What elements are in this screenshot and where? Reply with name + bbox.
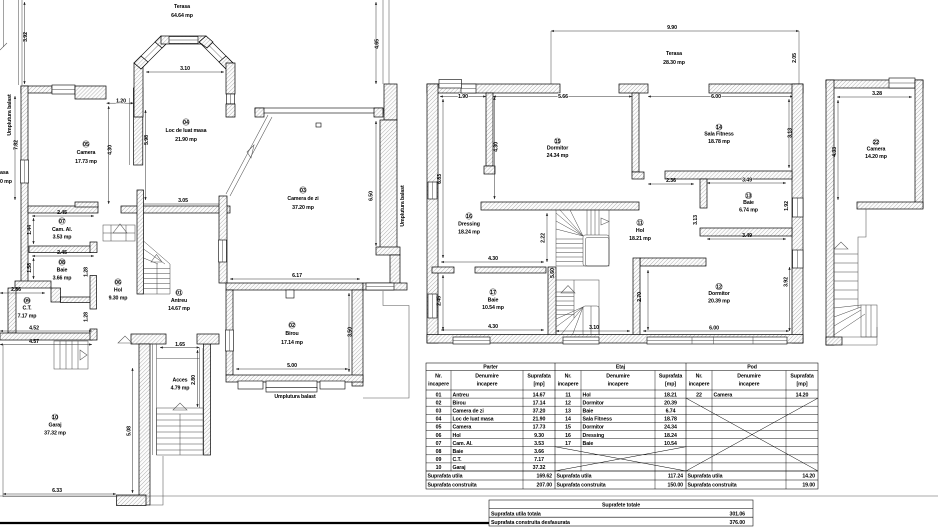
svg-text:37.20 mp: 37.20 mp [292, 205, 314, 211]
svg-text:21.90 mp: 21.90 mp [175, 137, 197, 143]
svg-text:3.50: 3.50 [348, 327, 354, 337]
svg-text:5.08: 5.08 [127, 426, 133, 436]
svg-text:Dressing: Dressing [458, 222, 480, 228]
svg-text:14.20: 14.20 [802, 474, 815, 480]
svg-text:13: 13 [746, 194, 752, 200]
svg-text:7.17 mp: 7.17 mp [18, 314, 37, 320]
svg-text:6.74 mp: 6.74 mp [739, 208, 758, 214]
svg-text:1.44: 1.44 [27, 225, 33, 235]
svg-text:Birou: Birou [285, 331, 298, 337]
svg-text:37.32 mp: 37.32 mp [44, 431, 66, 437]
svg-text:150.00: 150.00 [668, 483, 684, 489]
svg-text:24.34: 24.34 [664, 425, 677, 431]
svg-text:07: 07 [436, 441, 442, 447]
svg-text:Camera: Camera [77, 150, 96, 156]
svg-text:10: 10 [436, 465, 442, 471]
svg-text:19.00: 19.00 [802, 483, 815, 489]
svg-text:4.79 mp: 4.79 mp [171, 386, 190, 392]
svg-text:2.22: 2.22 [541, 233, 547, 243]
svg-text:Baie: Baie [743, 200, 754, 206]
svg-text:4.30: 4.30 [488, 256, 498, 262]
svg-text:03: 03 [300, 188, 306, 194]
svg-text:1.92: 1.92 [784, 201, 790, 211]
svg-text:4.30: 4.30 [108, 145, 114, 155]
svg-text:18.24 mp: 18.24 mp [458, 230, 480, 236]
svg-text:0 mp: 0 mp [0, 179, 12, 185]
svg-text:9.30: 9.30 [534, 433, 544, 439]
svg-text:incapere: incapere [608, 382, 629, 388]
svg-text:22: 22 [873, 140, 879, 146]
svg-text:5.66: 5.66 [558, 94, 568, 100]
svg-text:18.21 mp: 18.21 mp [629, 236, 651, 242]
svg-text:3.66: 3.66 [534, 449, 544, 455]
svg-text:07: 07 [59, 219, 65, 225]
svg-text:169.62: 169.62 [537, 474, 553, 480]
svg-text:[mp]: [mp] [534, 382, 545, 388]
svg-text:Antreu: Antreu [171, 298, 187, 304]
svg-text:1.28: 1.28 [84, 312, 90, 322]
svg-text:3.92: 3.92 [23, 32, 29, 42]
svg-text:02: 02 [436, 400, 442, 406]
svg-text:14: 14 [565, 417, 571, 423]
svg-text:Camera: Camera [867, 147, 886, 153]
svg-text:Garaj: Garaj [49, 423, 63, 429]
svg-text:6.83: 6.83 [437, 174, 443, 184]
svg-text:Umplutura balast: Umplutura balast [274, 394, 316, 400]
svg-text:9.90: 9.90 [667, 25, 677, 31]
svg-text:13: 13 [565, 409, 571, 415]
svg-text:6.74: 6.74 [666, 409, 676, 415]
svg-text:6.00: 6.00 [709, 326, 719, 332]
svg-text:14: 14 [716, 125, 722, 131]
svg-text:Suprafata: Suprafata [790, 374, 813, 380]
svg-text:Pod: Pod [747, 364, 757, 370]
svg-text:15: 15 [555, 139, 561, 145]
svg-text:Antreu: Antreu [453, 392, 469, 398]
svg-text:Nr.: Nr. [435, 374, 442, 380]
svg-text:Loc de luat masa: Loc de luat masa [166, 128, 207, 134]
svg-text:2.80: 2.80 [191, 375, 197, 385]
svg-text:10.54 mp: 10.54 mp [482, 305, 504, 311]
svg-text:Camera: Camera [453, 425, 472, 431]
svg-text:18.78: 18.78 [664, 417, 677, 423]
svg-text:Baie: Baie [583, 441, 594, 447]
svg-text:2.36: 2.36 [666, 178, 676, 184]
svg-text:14.20: 14.20 [796, 392, 809, 398]
svg-text:3.49: 3.49 [742, 233, 752, 239]
svg-text:15: 15 [565, 425, 571, 431]
svg-text:18.24: 18.24 [664, 433, 677, 439]
svg-text:11: 11 [565, 392, 571, 398]
svg-text:6.17: 6.17 [292, 273, 302, 279]
svg-text:17.14 mp: 17.14 mp [281, 340, 303, 346]
svg-text:Garaj: Garaj [453, 465, 467, 471]
svg-text:17: 17 [490, 290, 496, 296]
svg-text:Hol: Hol [583, 392, 592, 398]
svg-text:02: 02 [289, 323, 295, 329]
svg-text:Baie: Baie [583, 409, 594, 415]
svg-text:Suprafata: Suprafata [527, 374, 550, 380]
svg-text:4.65: 4.65 [375, 39, 381, 49]
svg-text:37.20: 37.20 [533, 409, 546, 415]
svg-text:3.05: 3.05 [178, 198, 188, 204]
svg-text:Dormitor: Dormitor [583, 400, 604, 406]
svg-text:12: 12 [716, 285, 722, 291]
svg-text:14.67 mp: 14.67 mp [168, 306, 190, 312]
svg-text:21.90: 21.90 [533, 417, 546, 423]
svg-text:Cam. Al.: Cam. Al. [453, 441, 474, 447]
svg-text:3.28: 3.28 [872, 91, 882, 97]
svg-text:01: 01 [176, 291, 182, 297]
svg-text:Nr.: Nr. [696, 374, 703, 380]
svg-text:Acces: Acces [173, 378, 188, 384]
svg-text:Suprafata utila: Suprafata utila [688, 474, 723, 480]
svg-text:2.05: 2.05 [792, 53, 798, 63]
svg-text:64.64 mp: 64.64 mp [171, 13, 193, 19]
svg-text:Umplutura balast: Umplutura balast [7, 94, 13, 136]
svg-text:4.52: 4.52 [29, 326, 39, 332]
svg-text:2.45: 2.45 [57, 210, 67, 216]
svg-text:3.53 mp: 3.53 mp [53, 235, 72, 241]
svg-text:Denumire: Denumire [475, 374, 499, 380]
svg-text:08: 08 [59, 260, 65, 266]
svg-text:Suprafata construita: Suprafata construita [428, 483, 477, 489]
svg-text:3.13: 3.13 [693, 215, 699, 225]
svg-text:Nr.: Nr. [565, 374, 572, 380]
svg-text:Terasa: Terasa [174, 4, 190, 10]
svg-text:Suprafata construita: Suprafata construita [688, 483, 737, 489]
svg-text:Suprafete totale: Suprafete totale [602, 503, 640, 509]
svg-text:10: 10 [52, 415, 58, 421]
svg-text:incapere: incapere [558, 382, 579, 388]
svg-text:207.00: 207.00 [537, 483, 553, 489]
svg-text:Suprafata: Suprafata [659, 374, 682, 380]
svg-text:Umplutura balast: Umplutura balast [400, 185, 406, 227]
svg-text:[mp]: [mp] [665, 382, 676, 388]
svg-text:Cam. Al.: Cam. Al. [52, 227, 73, 233]
svg-text:Parter: Parter [483, 364, 498, 370]
svg-text:17: 17 [565, 441, 571, 447]
svg-text:Suprafata construita desfasura: Suprafata construita desfasurata [491, 520, 570, 526]
svg-text:2.70: 2.70 [637, 292, 643, 302]
svg-text:22: 22 [696, 392, 702, 398]
svg-text:14.67: 14.67 [533, 392, 546, 398]
svg-text:08: 08 [436, 449, 442, 455]
svg-text:3.53: 3.53 [534, 441, 544, 447]
svg-text:7.82: 7.82 [14, 140, 20, 150]
svg-text:10.54: 10.54 [664, 441, 677, 447]
svg-text:14.20 mp: 14.20 mp [865, 154, 887, 160]
svg-text:4.30: 4.30 [488, 324, 498, 330]
svg-text:4.57: 4.57 [29, 339, 39, 345]
svg-text:06: 06 [436, 433, 442, 439]
svg-text:3.92: 3.92 [784, 277, 790, 287]
svg-text:1.20: 1.20 [116, 99, 126, 105]
svg-text:04: 04 [183, 120, 189, 126]
svg-text:16: 16 [466, 214, 472, 220]
svg-text:Sala Fitness: Sala Fitness [704, 132, 734, 138]
svg-text:Camera de zi: Camera de zi [287, 196, 319, 202]
svg-text:6.50: 6.50 [369, 191, 375, 201]
svg-text:Terasa: Terasa [666, 51, 682, 57]
svg-text:C.T.: C.T. [453, 457, 463, 463]
svg-text:16: 16 [565, 433, 571, 439]
svg-text:Dressing: Dressing [583, 433, 605, 439]
svg-text:5.60: 5.60 [550, 268, 556, 278]
svg-text:C.T.: C.T. [23, 306, 33, 312]
svg-text:18.21: 18.21 [664, 392, 677, 398]
svg-text:376.00: 376.00 [730, 520, 746, 526]
svg-text:05: 05 [83, 142, 89, 148]
svg-text:1.65: 1.65 [175, 342, 185, 348]
svg-text:Suprafata utila totala: Suprafata utila totala [491, 511, 541, 517]
svg-text:05: 05 [436, 425, 442, 431]
svg-text:17.73: 17.73 [533, 425, 546, 431]
svg-text:Loc de luat masa: Loc de luat masa [453, 417, 494, 423]
svg-text:6.00: 6.00 [711, 94, 721, 100]
svg-text:301.06: 301.06 [730, 511, 746, 517]
svg-text:04: 04 [436, 417, 442, 423]
svg-text:Dormitor: Dormitor [583, 425, 604, 431]
svg-text:Etaj: Etaj [616, 364, 626, 370]
svg-text:37.32: 37.32 [533, 465, 546, 471]
svg-text:09: 09 [436, 457, 442, 463]
svg-text:4.33: 4.33 [832, 147, 838, 157]
svg-text:06: 06 [115, 280, 121, 286]
svg-text:28.30 mp: 28.30 mp [663, 60, 685, 66]
svg-text:3.66 mp: 3.66 mp [53, 276, 72, 282]
svg-text:Hol: Hol [114, 288, 123, 294]
svg-text:2.86: 2.86 [11, 287, 21, 293]
svg-text:Denumire: Denumire [737, 374, 761, 380]
svg-text:Baie: Baie [453, 449, 464, 455]
svg-text:Denumire: Denumire [606, 374, 630, 380]
svg-text:24.34 mp: 24.34 mp [547, 153, 569, 159]
svg-text:1.28: 1.28 [84, 267, 90, 277]
svg-text:asa: asa [0, 170, 9, 176]
svg-text:3.10: 3.10 [180, 66, 190, 72]
svg-text:Baie: Baie [488, 298, 499, 304]
svg-text:03: 03 [436, 409, 442, 415]
svg-text:Suprafata construita: Suprafata construita [557, 483, 606, 489]
svg-text:5.98: 5.98 [144, 135, 150, 145]
svg-text:17.14: 17.14 [533, 400, 546, 406]
svg-text:Hol: Hol [636, 228, 645, 234]
svg-text:Baie: Baie [57, 268, 68, 274]
svg-text:20.39 mp: 20.39 mp [708, 299, 730, 305]
svg-text:Hol: Hol [453, 433, 462, 439]
svg-text:20.39: 20.39 [664, 400, 677, 406]
svg-text:1.58: 1.58 [27, 263, 33, 273]
svg-text:Suprafata utila: Suprafata utila [557, 474, 592, 480]
svg-text:7.17: 7.17 [534, 457, 544, 463]
svg-text:incapere: incapere [689, 382, 710, 388]
svg-text:1.90: 1.90 [458, 94, 468, 100]
svg-text:17.73 mp: 17.73 mp [75, 159, 97, 165]
svg-text:2.45: 2.45 [437, 296, 443, 306]
svg-text:5.00: 5.00 [287, 363, 297, 369]
svg-text:4.30: 4.30 [494, 142, 500, 152]
svg-text:[mp]: [mp] [797, 382, 808, 388]
svg-text:Birou: Birou [453, 400, 466, 406]
svg-text:2.45: 2.45 [57, 250, 67, 256]
svg-text:09: 09 [24, 299, 30, 305]
svg-text:117.24: 117.24 [668, 474, 683, 480]
svg-text:6.33: 6.33 [52, 488, 62, 494]
svg-text:Sala Fitness: Sala Fitness [583, 417, 613, 423]
svg-text:Camera: Camera [714, 392, 733, 398]
svg-text:incapere: incapere [477, 382, 498, 388]
svg-text:01: 01 [436, 392, 442, 398]
svg-text:9.30 mp: 9.30 mp [109, 296, 128, 302]
svg-text:incapere: incapere [739, 382, 760, 388]
svg-text:18.78 mp: 18.78 mp [708, 139, 730, 145]
svg-text:Suprafata utila: Suprafata utila [428, 474, 463, 480]
svg-text:3.49: 3.49 [742, 178, 752, 184]
svg-text:Camera de zi: Camera de zi [453, 409, 485, 415]
svg-text:incapere: incapere [428, 382, 449, 388]
svg-text:12: 12 [565, 400, 571, 406]
svg-text:11: 11 [637, 221, 643, 227]
svg-text:Dormitor: Dormitor [547, 146, 568, 152]
svg-text:3.10: 3.10 [589, 325, 599, 331]
svg-text:Dormitor: Dormitor [708, 291, 729, 297]
